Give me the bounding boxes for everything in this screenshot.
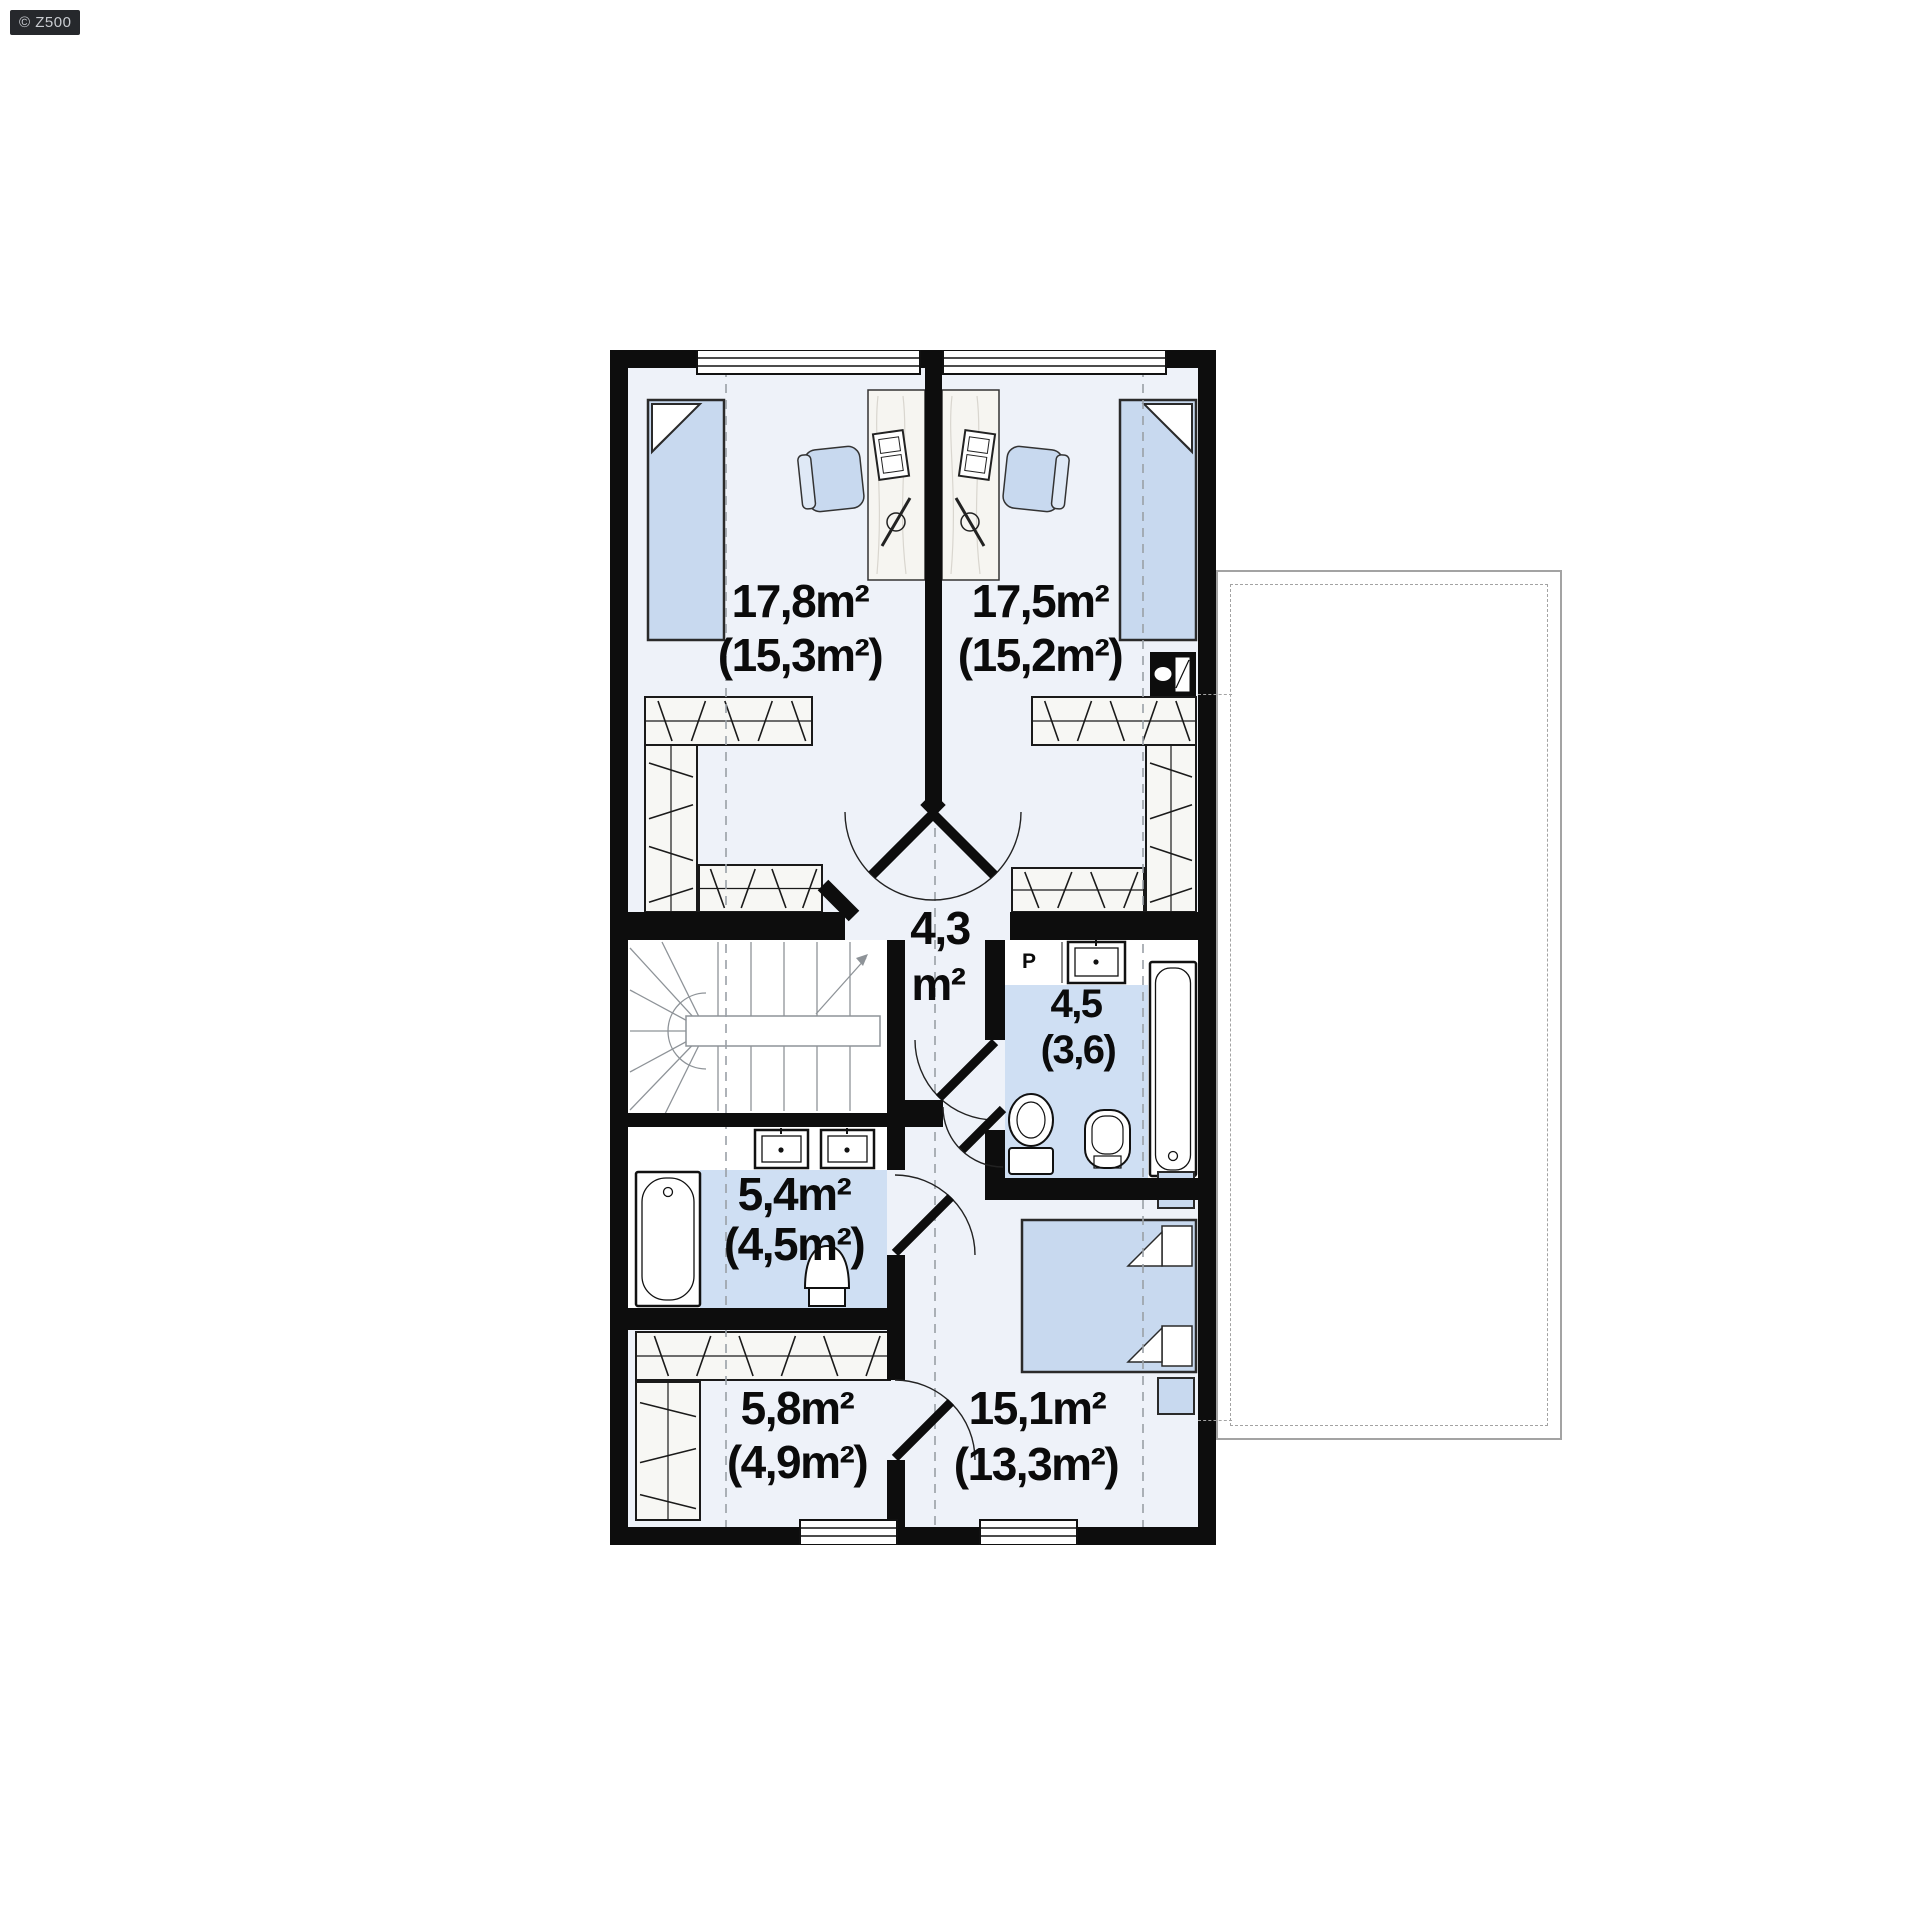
room-label-bedroom-master: (13,3m²) [954, 1441, 1118, 1487]
watermark-badge: © Z500 [10, 10, 80, 35]
garage-roof-outline-inner [1230, 584, 1548, 1426]
room-label-bathroom-small: 4,5 [1050, 984, 1101, 1024]
window-icon [800, 1520, 897, 1545]
bidet-icon [1085, 1110, 1130, 1168]
chair-icon [797, 445, 865, 513]
room-label-hall: m² [911, 961, 964, 1007]
room-label-bathroom: (4,5m²) [724, 1221, 864, 1267]
room-label-bathroom-small: (3,6) [1041, 1030, 1116, 1070]
toilet-icon [1009, 1094, 1053, 1174]
wardrobe-icon [636, 1332, 890, 1380]
bed-icon [1120, 400, 1196, 640]
wardrobe-icon [645, 745, 697, 912]
bed-icon [1022, 1220, 1196, 1372]
page: © Z500 [0, 0, 1920, 1920]
desk-icon [942, 390, 999, 580]
wardrobe-icon [699, 865, 822, 912]
washer-label: P [1022, 950, 1036, 974]
room-label-bathroom: 5,4m² [738, 1171, 851, 1217]
chimney-vent-icon [1150, 652, 1196, 697]
room-label-bedroom-left: (15,3m²) [718, 632, 882, 678]
bathtub-icon [1150, 962, 1196, 1176]
window-icon [980, 1520, 1077, 1545]
room-label-bedroom-left: 17,8m² [732, 578, 869, 624]
bed-icon [648, 400, 724, 640]
garage-roof-outline [1216, 570, 1562, 1440]
sink-icon [1062, 940, 1125, 983]
room-label-hall: 4,3 [910, 905, 969, 951]
wardrobe-icon [1146, 745, 1196, 912]
sink-icon [821, 1128, 874, 1168]
room-label-wardrobe: 5,8m² [741, 1385, 854, 1431]
window-icon [697, 350, 920, 374]
bathtub-icon [636, 1172, 700, 1306]
room-label-bedroom-right: 17,5m² [972, 578, 1109, 624]
sink-icon [755, 1128, 808, 1168]
wardrobe-icon [1032, 697, 1196, 745]
roof-connector-line [1198, 1420, 1232, 1421]
chair-icon [1002, 445, 1070, 513]
roof-connector-line [1198, 694, 1232, 695]
room-label-bedroom-right: (15,2m²) [958, 632, 1122, 678]
room-label-wardrobe: (4,9m²) [727, 1439, 867, 1485]
window-icon [943, 350, 1166, 374]
wardrobe-icon [1012, 868, 1144, 912]
wardrobe-icon [636, 1382, 700, 1520]
desk-icon [868, 390, 925, 580]
wardrobe-icon [645, 697, 812, 745]
room-label-bedroom-master: 15,1m² [969, 1385, 1106, 1431]
